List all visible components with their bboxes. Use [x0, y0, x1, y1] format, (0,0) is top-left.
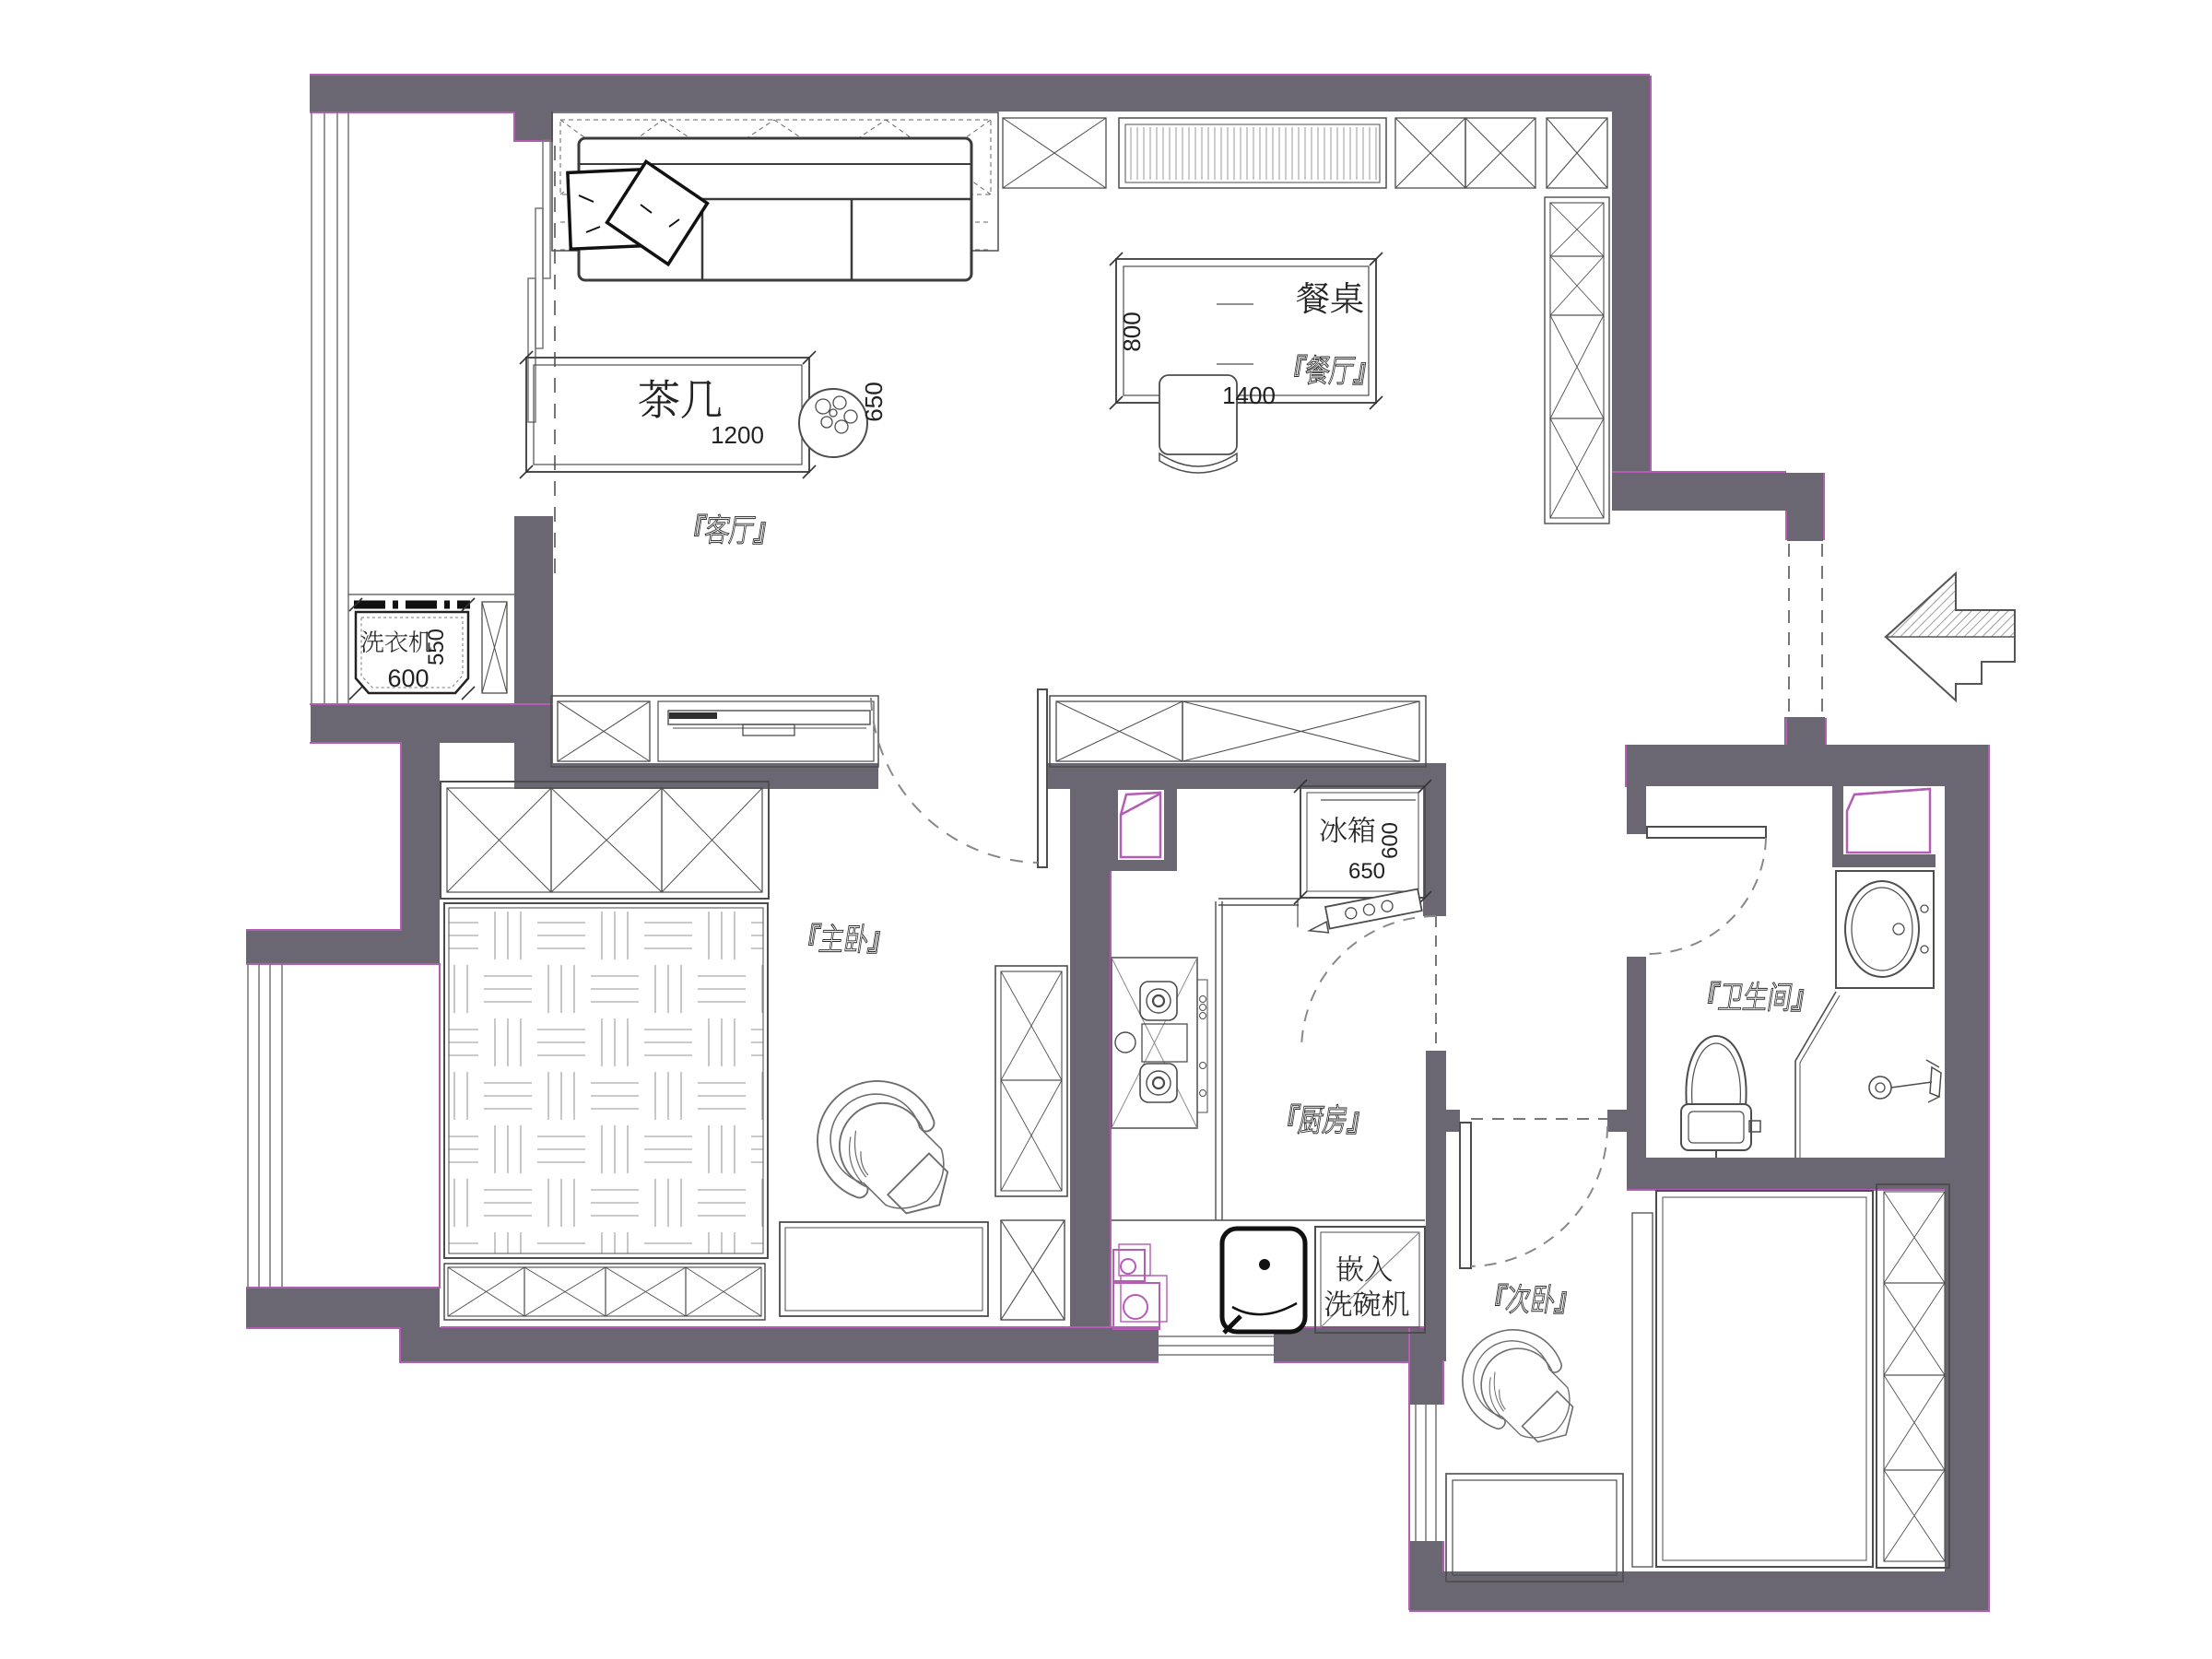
svg-text:1400: 1400: [1222, 382, 1276, 409]
svg-text:650: 650: [860, 382, 888, 421]
svg-text:600: 600: [387, 665, 429, 692]
svg-text:650: 650: [1348, 859, 1385, 884]
svg-text:800: 800: [1118, 312, 1146, 351]
svg-text:550: 550: [424, 629, 449, 665]
svg-text:600: 600: [1378, 822, 1403, 859]
svg-text:1200: 1200: [711, 421, 764, 449]
